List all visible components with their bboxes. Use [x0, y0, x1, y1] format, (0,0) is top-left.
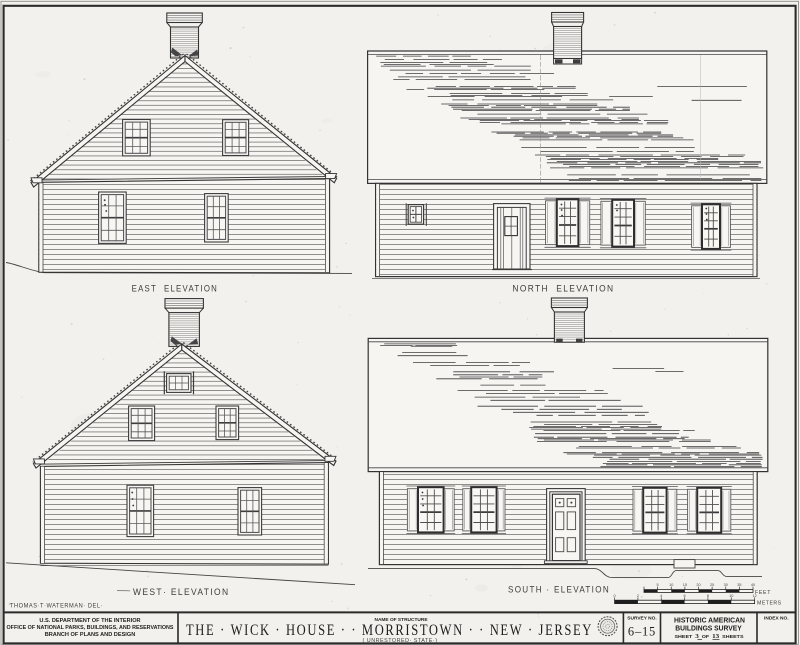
- svg-text:EAST ELEVATION: EAST ELEVATION: [132, 284, 219, 294]
- svg-text:SOUTH · ELEVATION: SOUTH · ELEVATION: [508, 585, 610, 595]
- svg-text:SHEET 3 OF 13 SHEETS: SHEET 3 OF 13 SHEETS: [675, 633, 745, 640]
- svg-text:NORTH ELEVATION: NORTH ELEVATION: [512, 284, 614, 294]
- svg-text:25: 25: [710, 583, 714, 587]
- svg-text:THE · WICK · HOUSE · · MORRIST: THE · WICK · HOUSE · · MORRISTOWN · · NE…: [186, 622, 593, 639]
- svg-text:THOMAS·T·WATERMAN· DEL·: THOMAS·T·WATERMAN· DEL·: [10, 603, 103, 610]
- svg-text:30: 30: [724, 583, 728, 587]
- svg-text:6–15: 6–15: [628, 625, 656, 639]
- svg-text:WEST· ELEVATION: WEST· ELEVATION: [133, 587, 230, 597]
- svg-text:OFFICE OF NATIONAL PARKS, BUIL: OFFICE OF NATIONAL PARKS, BUILDINGS, AND…: [7, 625, 174, 631]
- svg-text:10: 10: [729, 594, 733, 598]
- svg-text:2: 2: [637, 594, 639, 598]
- svg-text:15: 15: [683, 583, 687, 587]
- svg-text:SURVEY NO.: SURVEY NO.: [627, 616, 656, 622]
- svg-text:0: 0: [614, 594, 616, 598]
- svg-text:6: 6: [684, 594, 686, 598]
- svg-text:HISTORIC AMERICAN: HISTORIC AMERICAN: [674, 617, 745, 624]
- svg-text:U.S. DEPARTMENT OF THE INTERIO: U.S. DEPARTMENT OF THE INTERIOR: [39, 618, 140, 624]
- svg-text:10: 10: [669, 583, 673, 587]
- svg-text:FEET: FEET: [755, 590, 771, 596]
- svg-text:BRANCH OF PLANS AND DESIGN: BRANCH OF PLANS AND DESIGN: [45, 632, 136, 638]
- svg-text:35: 35: [737, 583, 741, 587]
- svg-text:20: 20: [696, 583, 700, 587]
- svg-text:METERS: METERS: [757, 601, 782, 607]
- svg-text:( UNRESTORED· STATE·): ( UNRESTORED· STATE·): [363, 638, 438, 644]
- svg-text:40: 40: [751, 583, 755, 587]
- svg-text:BUILDINGS SURVEY: BUILDINGS SURVEY: [675, 626, 742, 633]
- svg-text:INDEX NO.: INDEX NO.: [764, 616, 789, 622]
- svg-text:5: 5: [657, 583, 659, 587]
- svg-text:4: 4: [660, 594, 662, 598]
- svg-text:8: 8: [707, 594, 709, 598]
- svg-text:12: 12: [752, 594, 756, 598]
